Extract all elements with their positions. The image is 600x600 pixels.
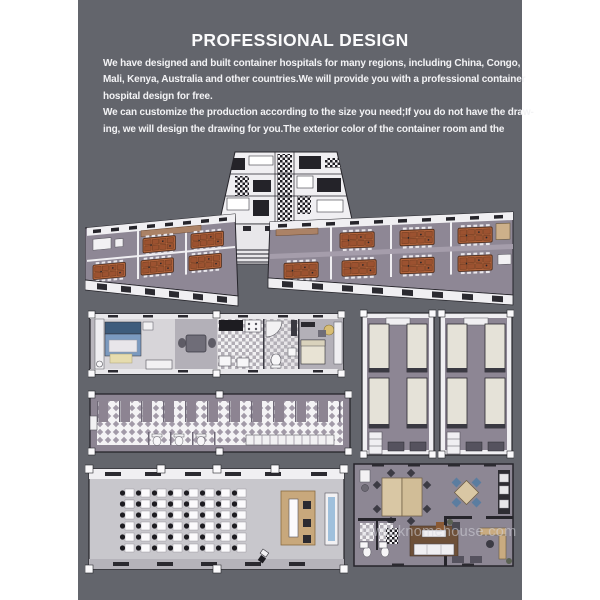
intro-line: Mali, Kenya, Australia and other countri…: [103, 72, 511, 88]
poster-page: PROFESSIONAL DESIGN We have designed and…: [0, 0, 600, 600]
isometric-hospital-complex: [85, 150, 520, 308]
intro-line: hospital design for free.: [103, 89, 511, 105]
floorplan-office-suite: [352, 462, 515, 570]
gray-panel: PROFESSIONAL DESIGN We have designed and…: [78, 0, 522, 600]
page-title: PROFESSIONAL DESIGN: [78, 30, 522, 51]
intro-line: ing, we will design the drawing for you.…: [103, 122, 511, 138]
floorplan-dormitory-2: [438, 308, 514, 460]
intro-line: We can customize the production accordin…: [103, 105, 511, 121]
floorplan-container-home: [88, 310, 345, 378]
watermark-text: www.knomehouse.com: [362, 524, 517, 540]
floorplan-shower-block: [88, 388, 352, 458]
floorplan-classroom: [85, 463, 348, 575]
intro-line: We have designed and built container hos…: [103, 56, 511, 72]
intro-text: We have designed and built container hos…: [103, 56, 511, 138]
floorplan-dormitory-1: [360, 308, 436, 460]
